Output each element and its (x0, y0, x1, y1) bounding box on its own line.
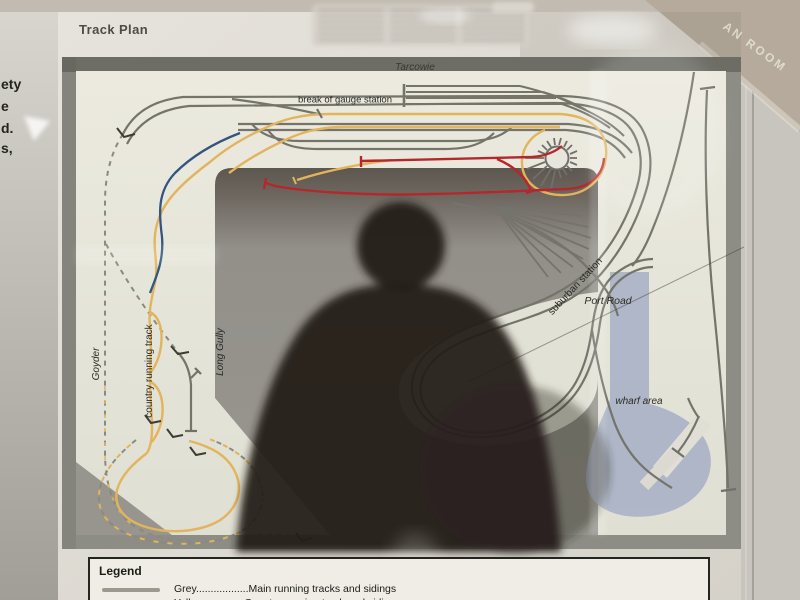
legend-title: Legend (99, 564, 142, 578)
label-break-of-gauge-station: break of gauge station (298, 95, 392, 105)
side-text-fragment: e (1, 98, 9, 114)
photo-of-track-plan: Track Plan ety e d. s, AN ROOM Tarcowie … (0, 0, 800, 600)
ceiling-vent-reflection (312, 2, 534, 46)
side-text-fragment: d. (1, 120, 13, 136)
page-title: Track Plan (79, 22, 148, 37)
label-port-road: Port Road (584, 296, 631, 307)
label-goyder: Goyder (92, 348, 102, 381)
legend-box: Legend Grey..................Main runnin… (88, 557, 710, 600)
legend-row-grey: Grey..................Main running track… (90, 583, 708, 597)
label-country-running-track: country running track (145, 324, 155, 417)
side-text-fragment: s, (1, 140, 13, 156)
label-wharf-area: wharf area (615, 397, 662, 407)
legend-row-text: Grey..................Main running track… (174, 583, 396, 595)
label-long-gully: Long Gully (216, 328, 226, 376)
track-plan-graphic (0, 0, 800, 600)
label-tarcowie: Tarcowie (395, 63, 435, 73)
side-text-fragment: ety (1, 76, 21, 92)
grey-line-swatch (102, 588, 160, 592)
